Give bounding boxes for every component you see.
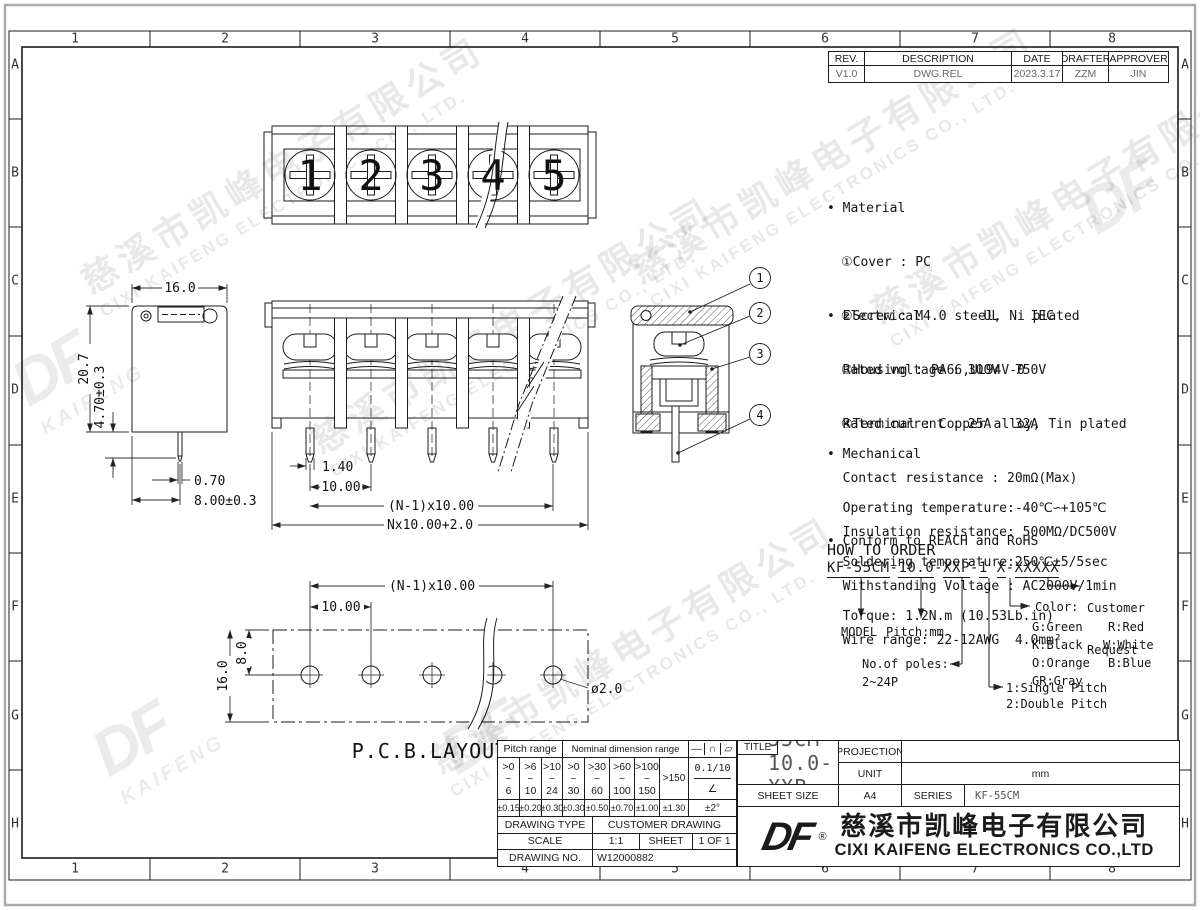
registered-mark: ®	[819, 831, 827, 843]
title-tag: TITLE	[738, 741, 778, 755]
pcb-layout	[273, 618, 588, 730]
rev-header: DRAFTER	[1063, 52, 1108, 65]
symbol-parallelogram: ▱	[721, 743, 736, 755]
side-view-dimensions: 16.0 20.7 4.70±0.3 0.70 8.00±0.3	[77, 281, 257, 509]
pcb-layout-label: P.C.B.LAYOUT	[352, 739, 509, 763]
revision-table: REV. DESCRIPTION DATE DRAFTER APPROVER V…	[828, 51, 1169, 83]
rev-value: DWG.REL	[865, 66, 1011, 82]
electrical-item: Rated voltage : 300V 750V	[827, 362, 1117, 380]
callout-number: 2	[756, 306, 763, 320]
angle-tolerance: ±2°	[689, 800, 736, 816]
callout-number: 1	[756, 271, 763, 285]
electrical-title: • Electrical UL IEC	[827, 308, 1117, 326]
range-cell: >0~30	[563, 758, 584, 799]
company-cell: DF ® 慈溪市凯峰电子有限公司 CIXI KAIFENG ELECTRONIC…	[738, 807, 1179, 866]
tolerance-value: ±0.30	[542, 800, 562, 816]
tolerance-value: ±1.00	[635, 800, 659, 816]
sheet-label: SHEET	[640, 834, 692, 850]
pitch-type-2: 2:Double Pitch	[1006, 697, 1107, 711]
dim-pcb-height: 16.0	[216, 660, 231, 691]
flatness-value: 0.1/10	[694, 758, 730, 779]
side-view	[132, 306, 227, 461]
angle-symbol: ∠	[708, 779, 717, 799]
material-item: ①Cover : PC	[827, 254, 1127, 272]
drawing-type-value: CUSTOMER DRAWING	[593, 817, 736, 833]
rev-value: ZZM	[1063, 66, 1108, 82]
rev-header: APPROVER	[1109, 52, 1168, 65]
unit-value: mm	[902, 763, 1179, 784]
order-seg-pitchtype: 1	[979, 560, 988, 578]
section-view: 1 2 3 4	[631, 268, 771, 463]
drawing-info-rows: DRAWING TYPE CUSTOMER DRAWING SCALE 1:1 …	[498, 817, 736, 866]
sheet-value: 1 OF 1	[693, 834, 736, 850]
scale-label: SCALE	[498, 834, 592, 850]
pole-number: 2	[358, 151, 383, 200]
how-to-order-title: HOW TO ORDER	[827, 541, 935, 559]
dim-span: (N-1)x10.00	[388, 499, 474, 514]
tolerance-table: Pitch range Nominal dimension range — ∩ …	[497, 740, 737, 867]
rev-header: REV.	[829, 52, 864, 65]
title-block: PROJECTION TITLE KF-55CM-10.0-XXP-1X UNI…	[737, 740, 1180, 867]
drawing-no-label: DRAWING NO.	[498, 850, 592, 866]
front-view-dimensions: 1.40 10.00 (N-1)x10.00 Nx10.00+2.0	[272, 432, 588, 533]
dim-height: 20.7	[77, 353, 92, 384]
front-view	[265, 296, 595, 472]
order-seg-pitch: 10.0	[898, 560, 934, 578]
rev-value: 2023.3.17	[1012, 66, 1062, 82]
order-sep: -	[970, 560, 979, 576]
range-cell: >0~6	[498, 758, 519, 799]
pole-number: 3	[419, 151, 444, 200]
dim-pin-width: 0.70	[194, 474, 225, 489]
series-label: SERIES	[902, 785, 965, 806]
order-seg-color: X	[997, 560, 1006, 578]
company-logo: DF	[759, 817, 815, 857]
dim-pcb-pitch: 10.00	[321, 600, 360, 615]
callout-number: 4	[756, 408, 763, 422]
rev-value: JIN	[1109, 66, 1168, 82]
symbol-straightness: —	[689, 743, 705, 755]
dim-pcb-hole-offset: 8.0	[235, 641, 250, 664]
drawing-no-value: W12000882	[593, 850, 736, 866]
order-code: KF-55CM-10.0-XXP-1 X-XXXXX	[827, 560, 1059, 576]
sheet-size-label: SHEET SIZE	[738, 785, 838, 806]
color-option: W:White	[1103, 638, 1154, 652]
tolerance-value: ±0.30	[563, 800, 584, 816]
tolerance-value: ±0.15	[498, 800, 519, 816]
nominal-range-header: Nominal dimension range	[563, 741, 688, 757]
range-cell: >60~100	[610, 758, 634, 799]
order-sep: -	[1006, 560, 1015, 576]
dim-width: 16.0	[164, 281, 195, 296]
range-cell: >10~24	[542, 758, 562, 799]
order-seg-custom: XXXXX	[1015, 560, 1060, 578]
color-option: G:Green	[1032, 620, 1083, 634]
dim-total-length: Nx10.00+2.0	[387, 518, 473, 533]
projection-symbol-cell	[902, 741, 1179, 762]
dim-pcb-span: (N-1)x10.00	[389, 579, 475, 594]
drawing-sheet: 慈溪市凯峰电子有限公司 CIXI KAIFENG ELECTRONICS CO.…	[0, 0, 1200, 910]
symbol-arc: ∩	[705, 743, 721, 755]
title-cell: TITLE KF-55CM-10.0-XXP-1X	[738, 741, 838, 784]
pole-number: 5	[541, 151, 566, 200]
projection-label: PROJECTION	[839, 741, 901, 762]
callout-number: 3	[756, 347, 763, 361]
material-title: • Material	[827, 200, 1127, 218]
dim-pin-position: 8.00±0.3	[194, 494, 257, 509]
color-option: K:Black	[1032, 638, 1083, 652]
model-label: MODEL	[841, 625, 877, 639]
pitch-range-header: Pitch range	[498, 741, 562, 757]
series-cell: SERIES KF-55CM	[902, 785, 1179, 806]
dim-pin-length: 4.70±0.3	[93, 366, 108, 429]
series-value: KF-55CM	[965, 790, 1019, 802]
poles-label: No.of poles:	[862, 657, 949, 671]
rev-value: V1.0	[829, 66, 864, 82]
color-option: B:Blue	[1108, 656, 1151, 670]
pole-number: 1	[297, 151, 322, 200]
top-view: 1 2 3 4 5	[264, 122, 596, 228]
color-option: R:Red	[1108, 620, 1144, 634]
pitch-label: Pitch:mm	[886, 625, 944, 639]
color-label: Color:	[1035, 600, 1078, 614]
dim-pitch: 10.00	[321, 480, 360, 495]
range-cell: >6~10	[520, 758, 541, 799]
scale-value: 1:1	[593, 834, 639, 850]
unit-label: UNIT	[839, 763, 901, 784]
drawing-type-label: DRAWING TYPE	[498, 817, 592, 833]
customer-line1: Customer	[1087, 601, 1145, 615]
tolerance-value: ±0.20	[520, 800, 541, 816]
sheet-size-value: A4	[839, 785, 901, 806]
range-cell: >100~150	[635, 758, 659, 799]
tolerance-value: ±1.30	[660, 800, 688, 816]
company-name-cn: 慈溪市凯峰电子有限公司	[840, 813, 1148, 841]
order-seg-model: KF-55CM	[827, 560, 890, 578]
pitch-type-1: 1:Single Pitch	[1006, 681, 1107, 695]
order-seg-poles: XXP	[943, 560, 970, 578]
order-sep	[988, 560, 997, 576]
rev-header: DATE	[1012, 52, 1062, 65]
flatness-angle-cell: 0.1/10 ∠	[689, 758, 736, 799]
tolerance-value: ±0.70	[610, 800, 634, 816]
tolerance-value: ±0.50	[585, 800, 609, 816]
pcb-holes	[297, 662, 566, 688]
company-name-en: CIXI KAIFENG ELECTRONICS CO.,LTD	[835, 841, 1154, 860]
mechanical-title: • Mechanical	[827, 446, 1108, 464]
rev-header: DESCRIPTION	[865, 52, 1011, 65]
symbols-header: — ∩ ▱	[689, 741, 736, 757]
pole-number: 4	[480, 151, 505, 200]
range-cell: >30~60	[585, 758, 609, 799]
dim-hole-diameter: ø2.0	[591, 682, 622, 697]
order-sep: -	[934, 560, 943, 576]
range-cell-last: >150	[660, 758, 688, 799]
color-option: O:Orange	[1032, 656, 1090, 670]
poles-value: 2~24P	[862, 675, 898, 689]
drawing-title: KF-55CM-10.0-XXP-1X	[768, 741, 838, 784]
dim-pin-width: 1.40	[322, 460, 353, 475]
